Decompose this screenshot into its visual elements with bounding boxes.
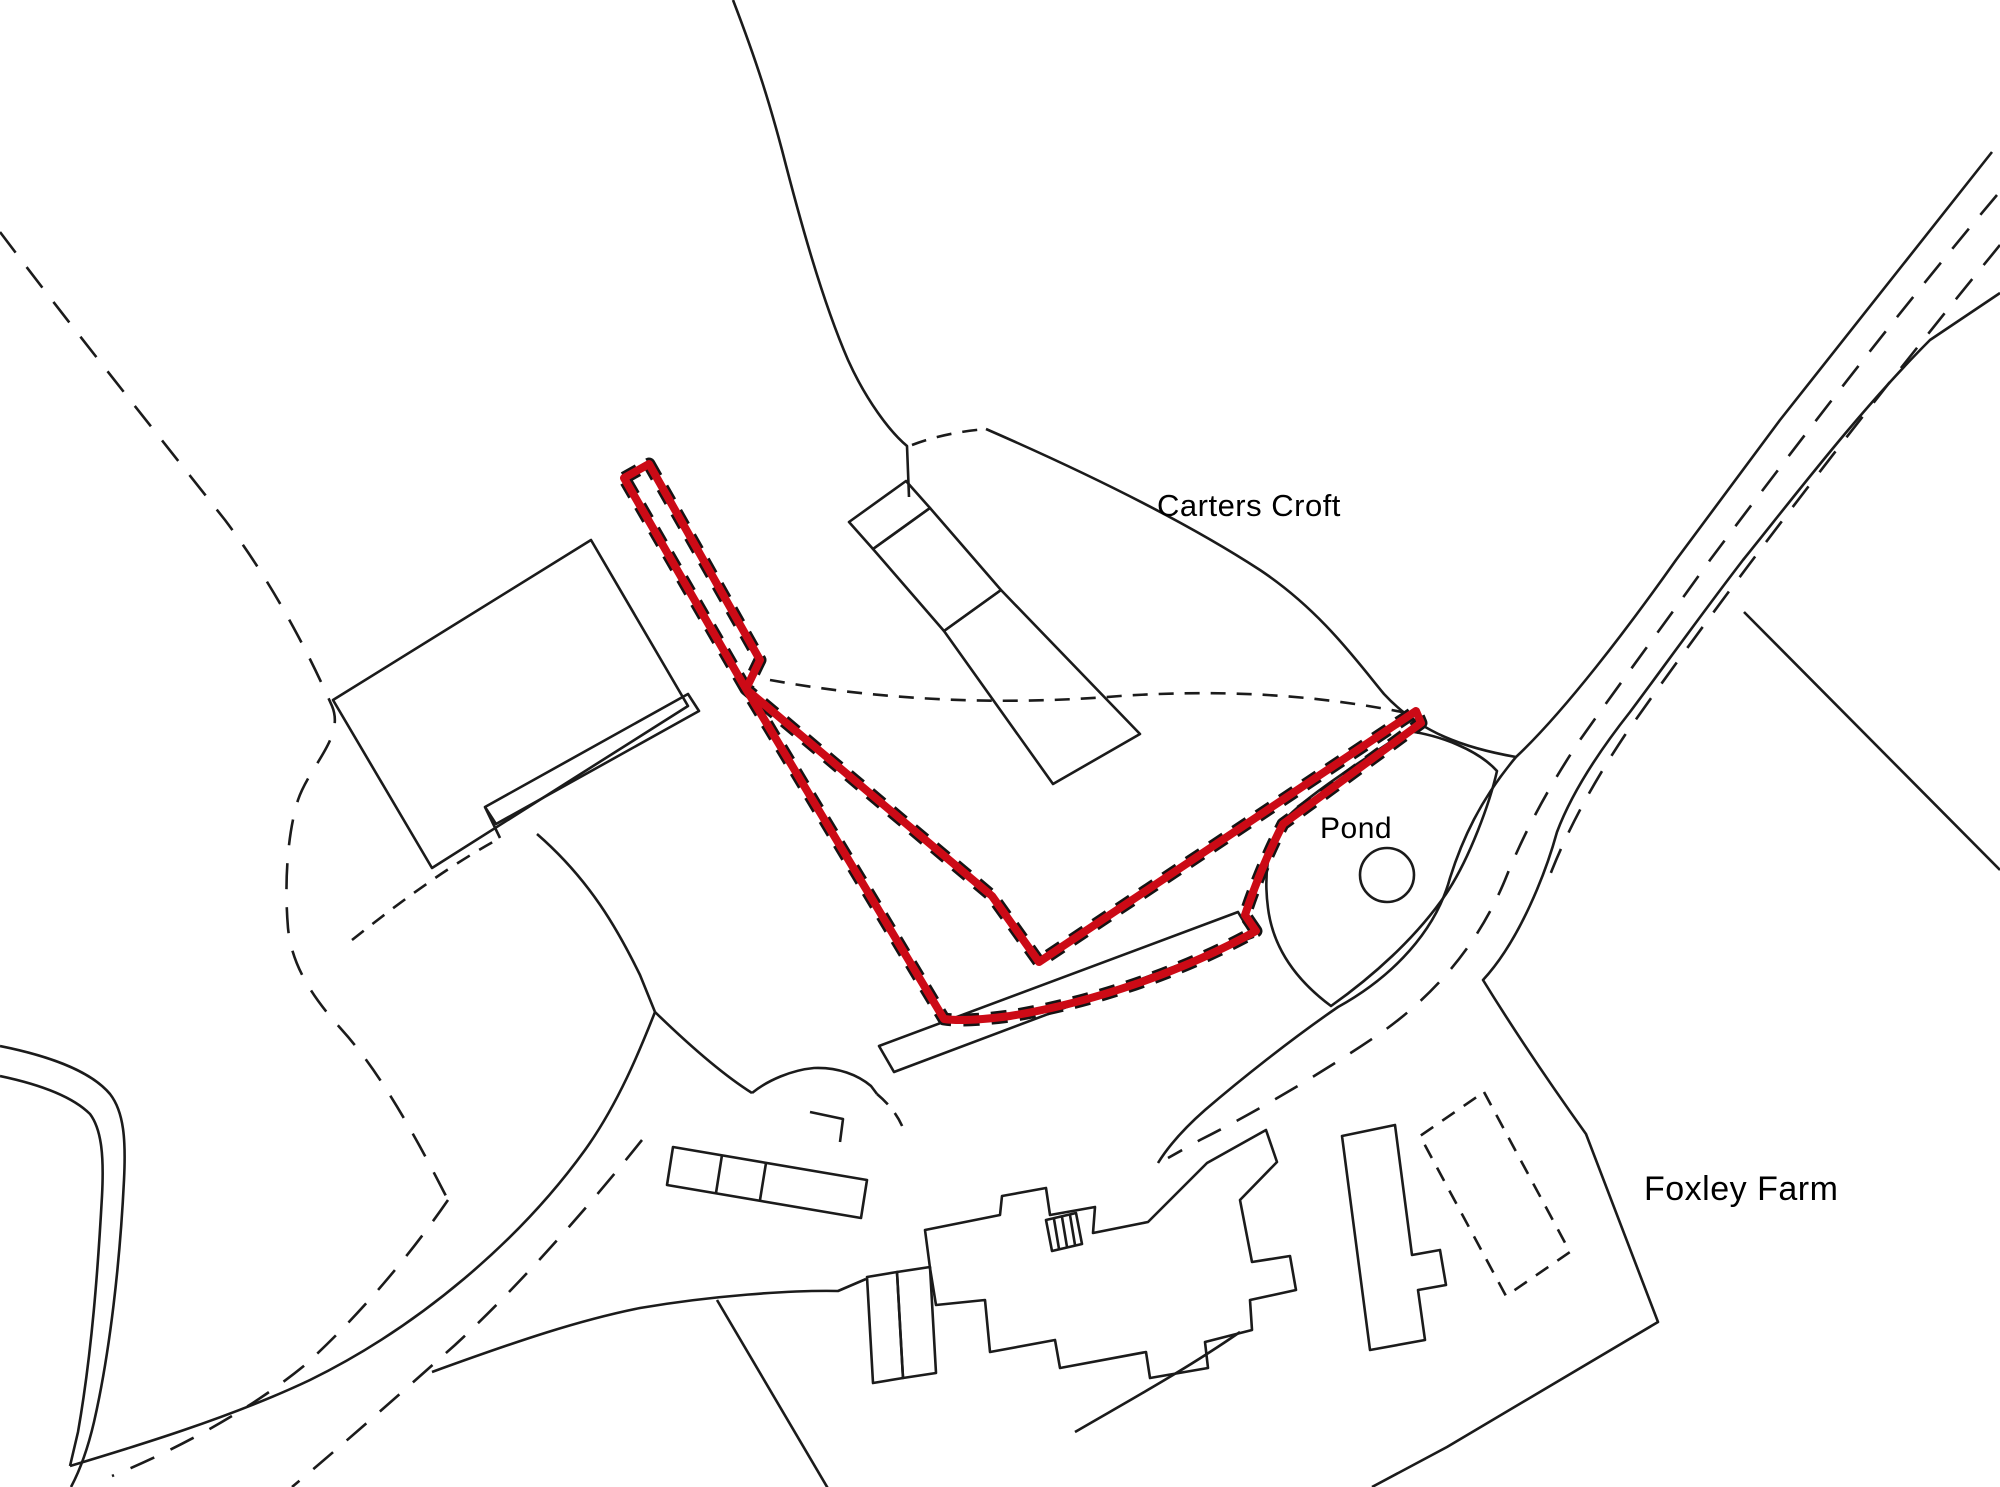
dashed-connector-field <box>352 838 500 940</box>
building-terrace-b <box>873 508 1001 631</box>
label-carters-croft: Carters Croft <box>1157 488 1341 523</box>
barn-curved-roof-dashed <box>877 1094 903 1128</box>
building-large <box>944 590 1140 784</box>
long-barn <box>667 1147 867 1218</box>
dashed-gap-top-boundary <box>912 429 986 445</box>
yard-boundary-west <box>432 1279 866 1372</box>
field-parcel-strip <box>485 694 699 824</box>
map-canvas: Carters Croft Pond Foxley Farm <box>0 0 2000 1487</box>
boundary-top-center <box>733 0 909 497</box>
track-dashed-1 <box>112 1200 448 1476</box>
road-dashed-verge-1 <box>1168 195 1997 1158</box>
site-plan-map: Carters Croft Pond Foxley Farm <box>0 0 2000 1487</box>
track-dashed-2 <box>292 1140 642 1487</box>
track-edge-solid <box>70 1012 655 1466</box>
track-edge-to-barn <box>655 1012 752 1093</box>
yard-boundary-east <box>1075 1332 1240 1432</box>
label-foxley-farm: Foxley Farm <box>1644 1170 1838 1208</box>
glasshouse-hatch <box>1054 1215 1075 1249</box>
dashed-track-upper <box>770 680 1402 712</box>
pond-circle <box>1360 848 1414 902</box>
farmhouse-complex <box>925 1130 1296 1378</box>
road-dashed-verge-2 <box>1545 245 2000 888</box>
outbuilding-t2 <box>897 1267 936 1378</box>
boundary-right-field <box>1744 612 2000 870</box>
dashed-boundary-left <box>0 232 448 1200</box>
lane-edge-outer <box>0 1046 125 1487</box>
label-pond: Pond <box>1320 812 1392 845</box>
building-east-wing <box>1342 1125 1446 1350</box>
lane-edge-inner <box>0 1076 103 1466</box>
road-edge-right-and-field-diamond <box>1372 293 2000 1487</box>
field-parcel-large <box>333 540 688 868</box>
fence-to-farmyard <box>537 834 655 1012</box>
field-line-bottom-left <box>717 1300 833 1487</box>
pond-enclosure <box>1266 731 1497 1006</box>
boundary-carters-croft <box>986 429 1516 757</box>
building-terrace-a <box>849 481 930 549</box>
long-barn-step <box>810 1112 843 1142</box>
road-edge-left <box>1158 152 1992 1163</box>
barn-curved-roof <box>752 1068 877 1094</box>
